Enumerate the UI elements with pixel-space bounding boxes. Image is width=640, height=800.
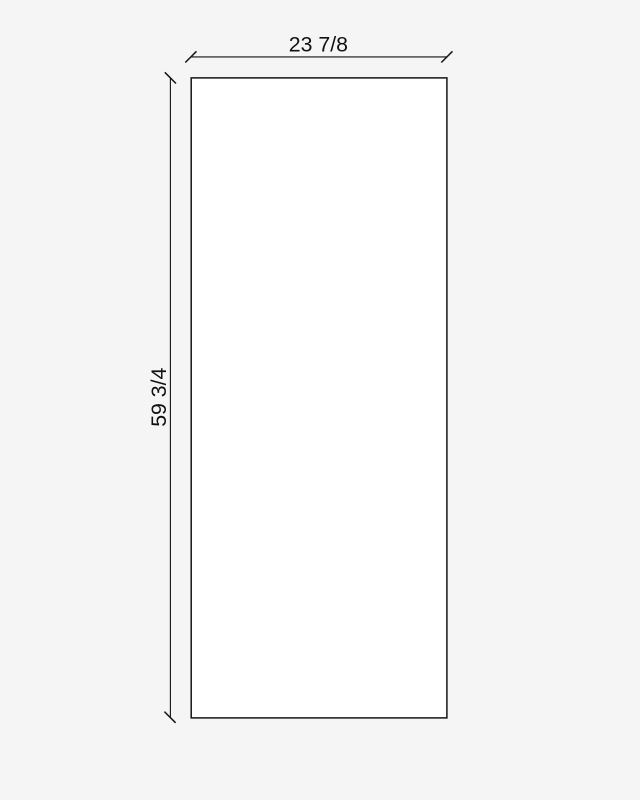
svg-text:23 7/8: 23 7/8 (289, 33, 348, 57)
svg-text:59 3/4: 59 3/4 (147, 367, 171, 426)
